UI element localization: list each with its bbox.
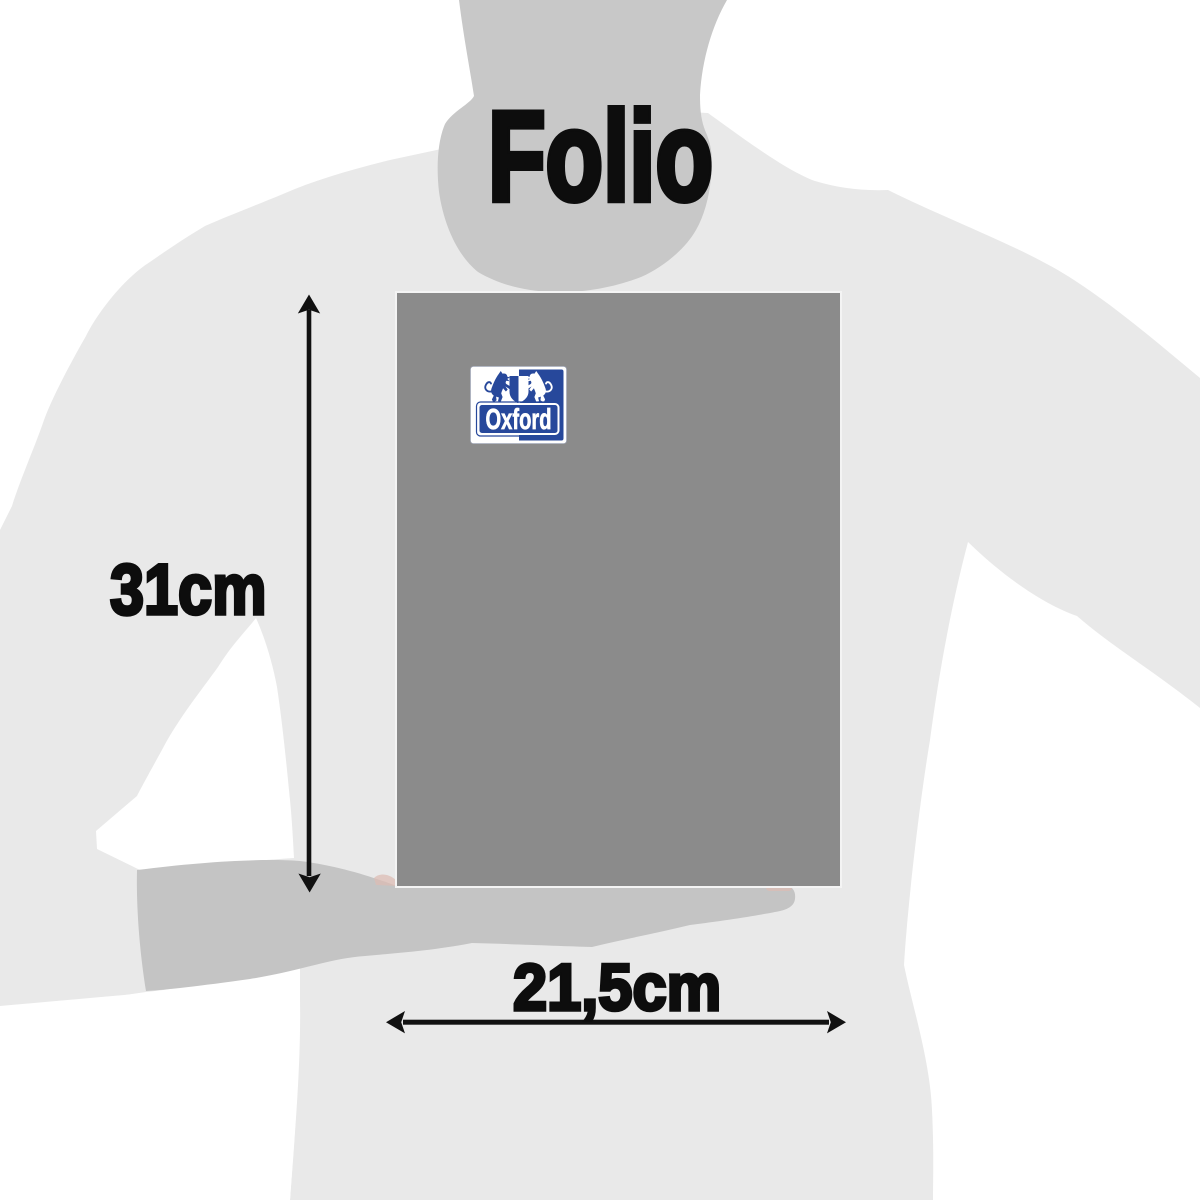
svg-text:Oxford: Oxford bbox=[486, 404, 552, 436]
svg-text:Folio: Folio bbox=[488, 85, 713, 227]
svg-text:21,5cm: 21,5cm bbox=[513, 950, 721, 1025]
svg-text:31cm: 31cm bbox=[110, 551, 266, 630]
